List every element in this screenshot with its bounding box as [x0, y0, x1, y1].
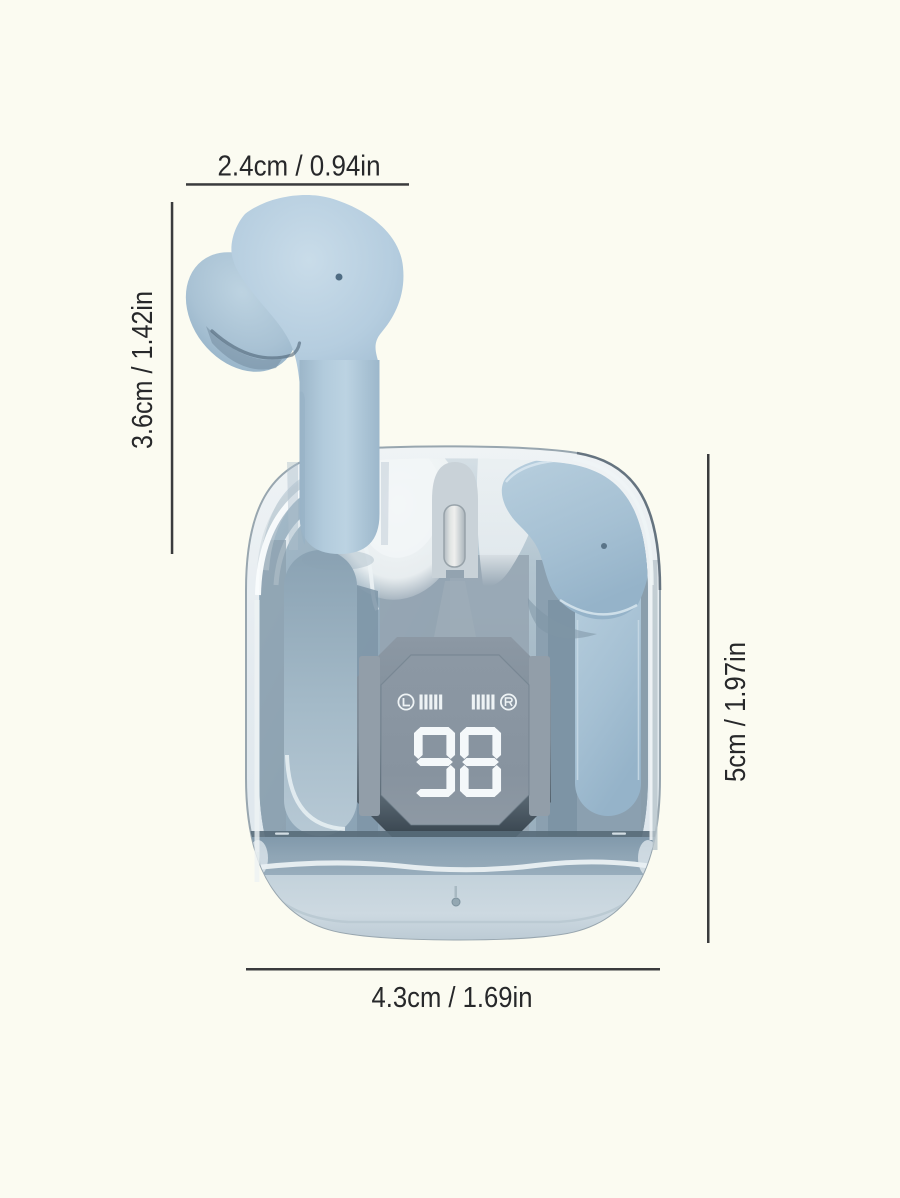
svg-text:2.4cm / 0.94in: 2.4cm / 0.94in: [218, 151, 381, 183]
svg-text:5cm / 1.97in: 5cm / 1.97in: [720, 642, 752, 782]
svg-text:3.6cm / 1.42in: 3.6cm / 1.42in: [127, 291, 159, 449]
svg-text:4.3cm / 1.69in: 4.3cm / 1.69in: [372, 982, 533, 1014]
